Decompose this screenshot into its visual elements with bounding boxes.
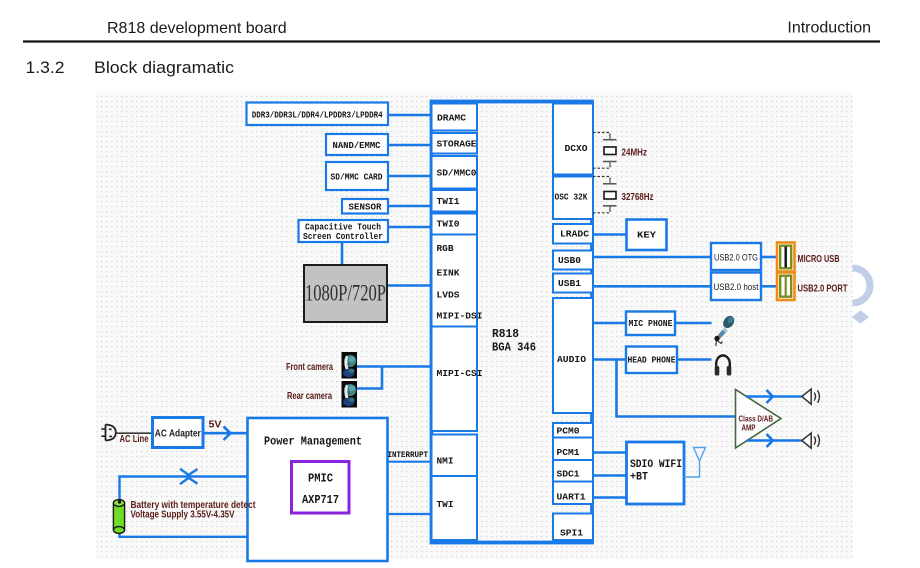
svg-text:OSC 32K: OSC 32K xyxy=(555,193,589,203)
svg-text:Rear camera: Rear camera xyxy=(287,391,332,402)
svg-text:HEAD PHONE: HEAD PHONE xyxy=(628,356,677,366)
svg-text:SDC1: SDC1 xyxy=(557,470,581,480)
svg-text:24MHz: 24MHz xyxy=(622,148,648,159)
svg-text:1.3.2: 1.3.2 xyxy=(26,58,65,77)
svg-text:AUDIO: AUDIO xyxy=(557,355,587,365)
svg-text:MIPI-CSI: MIPI-CSI xyxy=(437,369,483,379)
svg-text:TWI1: TWI1 xyxy=(437,197,461,207)
svg-text:MICRO USB: MICRO USB xyxy=(798,254,840,265)
svg-text:UART1: UART1 xyxy=(557,493,587,503)
svg-text:MIPI-DSI: MIPI-DSI xyxy=(437,312,483,322)
svg-text:DDR3/DDR3L/DDR4/LPDDR3/LPDDR4: DDR3/DDR3L/DDR4/LPDDR3/LPDDR4 xyxy=(252,110,383,121)
svg-text:Block diagramatic: Block diagramatic xyxy=(94,58,235,77)
svg-text:USB0: USB0 xyxy=(558,256,581,266)
svg-text:Front camera: Front camera xyxy=(286,362,333,373)
svg-text:5V: 5V xyxy=(209,420,222,431)
svg-text:AXP717: AXP717 xyxy=(302,494,339,507)
svg-text:AC Line: AC Line xyxy=(120,434,149,445)
svg-text:R818: R818 xyxy=(492,327,519,341)
svg-text:MIC PHONE: MIC PHONE xyxy=(629,319,674,329)
svg-text:AC Adapter: AC Adapter xyxy=(155,428,201,440)
svg-text:PCM1: PCM1 xyxy=(557,448,581,458)
svg-text:STORAGE: STORAGE xyxy=(437,140,478,150)
svg-text:LRADC: LRADC xyxy=(560,230,590,240)
svg-text:PCM0: PCM0 xyxy=(557,427,580,437)
svg-text:SD/MMC CARD: SD/MMC CARD xyxy=(331,172,383,183)
svg-text:BGA 346: BGA 346 xyxy=(492,341,536,355)
svg-text:TWI0: TWI0 xyxy=(437,220,460,230)
svg-text:Voltage Supply 3.55V-4.35V: Voltage Supply 3.55V-4.35V xyxy=(131,510,235,521)
svg-text:USB1: USB1 xyxy=(558,279,582,289)
svg-text:SPI1: SPI1 xyxy=(560,529,584,539)
svg-text:1080P/720P: 1080P/720P xyxy=(305,281,386,306)
svg-text:32768Hz: 32768Hz xyxy=(622,192,654,203)
svg-text:Introduction: Introduction xyxy=(787,20,871,37)
svg-text:R818 development board: R818 development board xyxy=(107,20,287,37)
svg-text:DRAMC: DRAMC xyxy=(437,114,467,124)
svg-text:NMI: NMI xyxy=(437,457,454,467)
svg-text:SENSOR: SENSOR xyxy=(349,202,382,213)
svg-text:RGB: RGB xyxy=(437,244,455,254)
svg-text:NAND/EMMC: NAND/EMMC xyxy=(333,140,381,151)
svg-text:INTERRUPT: INTERRUPT xyxy=(388,450,429,460)
svg-text:EINK: EINK xyxy=(437,269,461,279)
svg-text:DCXO: DCXO xyxy=(565,144,589,154)
svg-text:AMP: AMP xyxy=(742,423,756,433)
svg-text:SDIO WIFI: SDIO WIFI xyxy=(630,459,682,471)
svg-text:TWI: TWI xyxy=(437,500,454,510)
svg-text:PMIC: PMIC xyxy=(308,473,333,486)
svg-text:Power Management: Power Management xyxy=(264,436,362,449)
svg-text:Screen Controller: Screen Controller xyxy=(303,232,383,242)
svg-text:+BT: +BT xyxy=(630,472,648,484)
svg-text:LVDS: LVDS xyxy=(437,291,461,301)
svg-text:USB2.0 host: USB2.0 host xyxy=(714,282,759,293)
svg-text:SD/MMC0: SD/MMC0 xyxy=(437,169,477,179)
svg-text:KEY: KEY xyxy=(637,230,656,241)
svg-text:Capacitive Touch: Capacitive Touch xyxy=(305,223,381,233)
svg-text:USB2.0 OTG: USB2.0 OTG xyxy=(714,253,758,264)
svg-text:USB2.0 PORT: USB2.0 PORT xyxy=(798,284,848,295)
